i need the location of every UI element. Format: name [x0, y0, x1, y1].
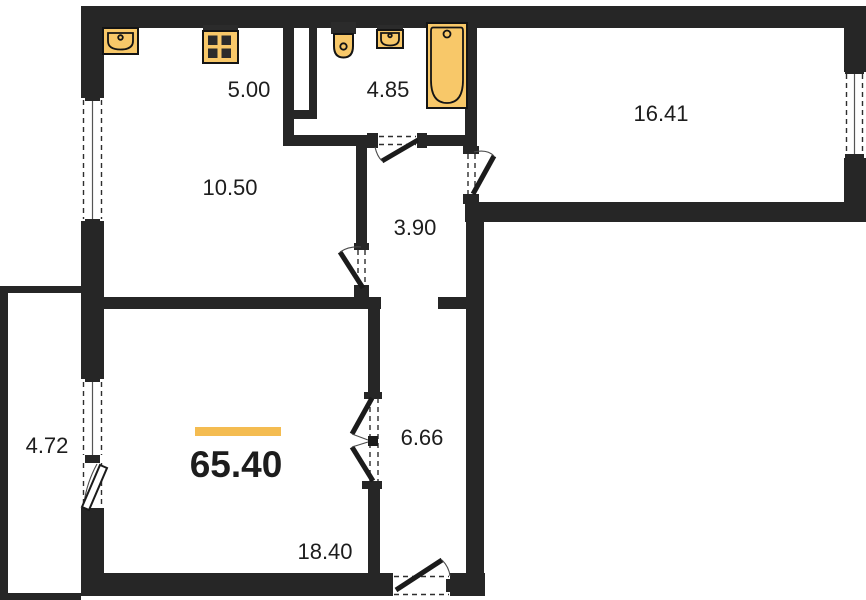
- jamb: [367, 133, 378, 148]
- bedroom-area-label: 16.41: [633, 101, 688, 126]
- wall-living-hall-upper: [368, 309, 380, 394]
- total-area: 65.40: [190, 427, 283, 485]
- total-area-underline: [195, 427, 281, 436]
- wall-kitchen-hall: [356, 135, 367, 245]
- kitchen-window: [84, 93, 102, 227]
- bathroom-area-label: 4.85: [367, 77, 410, 102]
- balcony-door-leaf: [82, 465, 107, 510]
- wall-stub: [438, 297, 466, 309]
- jamb: [364, 392, 382, 399]
- wall-living-hall-lower: [368, 488, 380, 573]
- interior-walls: [103, 28, 479, 592]
- kitchen-door-leaf: [340, 252, 363, 288]
- balcony-area-label: 4.72: [26, 433, 69, 458]
- window-cap: [85, 219, 100, 227]
- living-room-window: [84, 374, 102, 463]
- hallway-area-label: 3.90: [394, 215, 437, 240]
- double-door-pivot: [368, 436, 378, 446]
- wall-left-mid: [81, 221, 104, 379]
- living-room-double-door: [352, 398, 378, 481]
- bedroom-door-leaf: [473, 156, 494, 194]
- bedroom-door: [468, 151, 494, 194]
- jamb: [417, 133, 427, 148]
- kitchen-area-label: 10.50: [202, 175, 257, 200]
- entrance-hinge-block: [446, 579, 455, 592]
- wall-right-upper: [844, 6, 866, 72]
- wall-bathroom-bottom-right: [427, 135, 465, 146]
- floor-plan: 5.00 4.85 16.41 10.50 3.90 4.72 6.66 18.…: [0, 0, 866, 600]
- wall-top: [81, 6, 866, 28]
- window-cap: [845, 66, 864, 74]
- wall-shaft-bottom: [294, 110, 317, 119]
- balcony-wall-left: [0, 286, 8, 600]
- double-door-leaf-top: [352, 398, 372, 434]
- wall-shaft-right: [309, 28, 317, 119]
- window-cap: [85, 374, 100, 382]
- jamb: [463, 194, 479, 204]
- kitchen-niche-area-label: 5.00: [228, 77, 271, 102]
- stove-icon: [203, 25, 238, 63]
- jamb: [463, 146, 479, 154]
- jamb: [362, 481, 382, 489]
- wall-shaft-left: [283, 28, 294, 146]
- balcony-door: [82, 463, 107, 510]
- balcony-wall-top: [0, 286, 81, 293]
- toilet-icon: [331, 22, 356, 58]
- kitchen-sink-icon: [103, 28, 138, 54]
- window-cap: [85, 455, 100, 463]
- entrance-door-leaf: [396, 560, 442, 590]
- corridor-area-label: 6.66: [401, 425, 444, 450]
- wall-left-top: [81, 6, 104, 98]
- bedroom-window: [845, 66, 864, 162]
- window-cap: [85, 93, 100, 101]
- wall-corridor-right: [466, 222, 484, 596]
- washbasin-icon: [377, 25, 403, 48]
- wall-bedroom-bottom: [465, 202, 866, 222]
- window-cap: [845, 154, 864, 162]
- wall-living-top: [103, 297, 381, 309]
- wall-bottom-left: [81, 573, 393, 596]
- balcony-wall-bottom: [0, 593, 81, 600]
- entrance-door: [394, 560, 450, 595]
- floor-plan-canvas: 5.00 4.85 16.41 10.50 3.90 4.72 6.66 18.…: [0, 0, 866, 600]
- bathroom-door-leaf: [382, 140, 418, 161]
- kitchen-door: [340, 247, 365, 288]
- total-area-label: 65.40: [190, 444, 283, 485]
- bathroom-door: [375, 137, 418, 162]
- bathtub-icon: [427, 23, 467, 108]
- living-room-area-label: 18.40: [297, 539, 352, 564]
